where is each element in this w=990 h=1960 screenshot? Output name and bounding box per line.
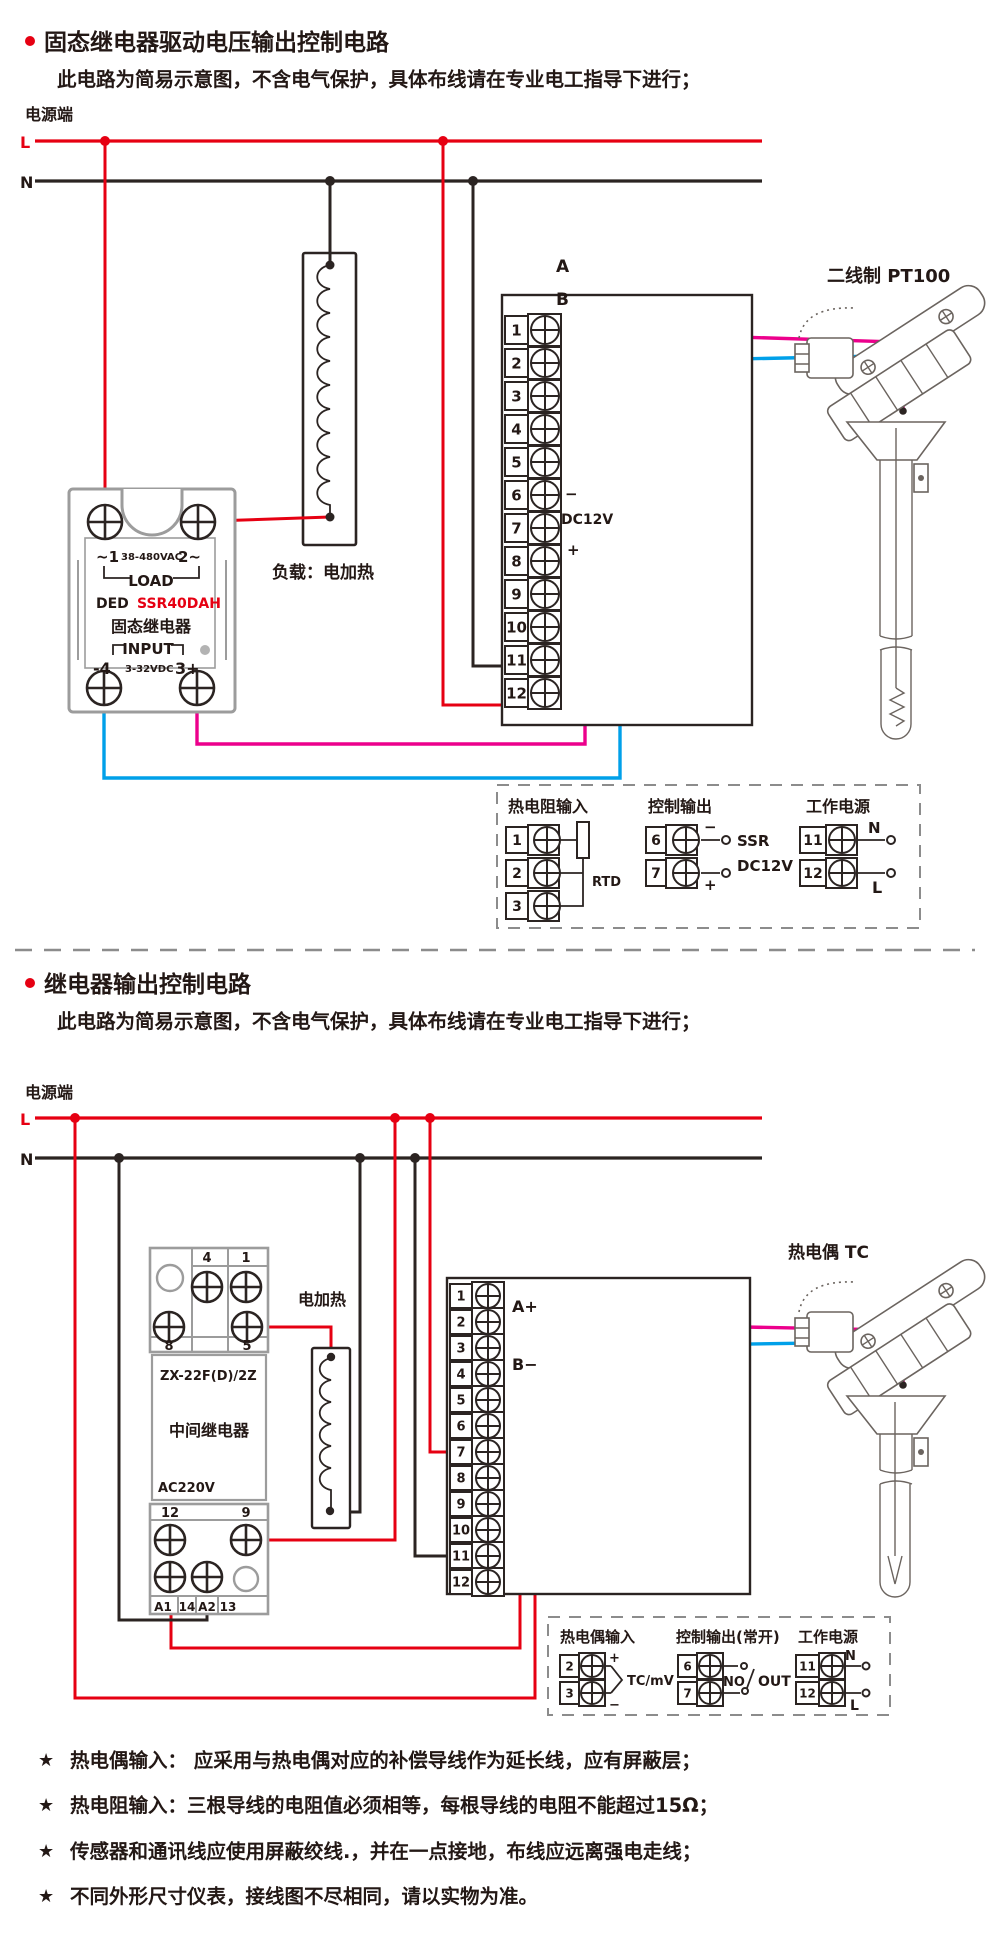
out-label: OUT <box>758 1674 791 1690</box>
power-l: L <box>872 878 882 897</box>
pt100-title: 二线制 PT100 <box>827 265 950 287</box>
star-icon: ★ <box>38 1795 54 1816</box>
footnote-4: 不同外形尺寸仪表，接线图不尽相同，请以实物为准。 <box>70 1885 538 1908</box>
svg-text:AC220V: AC220V <box>158 1481 215 1496</box>
ctrl-pin-6 <box>722 836 730 844</box>
junction-dot <box>390 1113 400 1123</box>
label-b-minus: B− <box>512 1355 538 1374</box>
no-label: NO <box>723 1675 745 1690</box>
dc12v-label: DC12V <box>561 512 613 528</box>
junction-dot <box>100 136 110 146</box>
svg-text:中间继电器: 中间继电器 <box>169 1421 250 1440</box>
relay-component: 4185ZX-22F(D)/2Z中间继电器AC220V129A114A213 <box>150 1248 268 1614</box>
heater1-bottom-dot <box>326 513 335 522</box>
legend-power-title: 工作电源 <box>798 1628 858 1646</box>
svg-text:3: 3 <box>565 1686 573 1700</box>
legend-ctrl-title: 控制输出 <box>648 797 712 816</box>
svg-text:ZX-22F(D)/2Z: ZX-22F(D)/2Z <box>160 1369 257 1384</box>
dc-plus: + <box>567 541 580 559</box>
svg-text:12: 12 <box>506 684 527 702</box>
svg-text:9: 9 <box>241 1506 250 1521</box>
tc-head <box>795 1254 990 1597</box>
ssr-name: 固态继电器 <box>111 617 192 636</box>
svg-text:11: 11 <box>803 833 822 849</box>
section1: 固态继电器驱动电压输出控制电路 此电路为简易示意图，不含电气保护，具体布线请在专… <box>20 29 990 928</box>
power-pin-n <box>887 836 895 844</box>
ssr-terminal-3: 3+ <box>175 659 200 678</box>
svg-text:11: 11 <box>452 1550 470 1565</box>
ctrl-plus: + <box>704 876 717 894</box>
svg-text:7: 7 <box>456 1446 465 1461</box>
svg-text:2: 2 <box>511 354 521 372</box>
legend2-ctrl-terminals: 67 <box>678 1653 723 1706</box>
legend1-rtd-terminals: 123 <box>506 825 560 921</box>
ssr-component: ~1 38-480VAC 2~ LOAD DED SSR40DAH 固态继电器 … <box>69 489 235 712</box>
legend-2: 热电偶输入 控制输出(常开) 工作电源 23 + − TC/mV 67 NO O… <box>548 1617 890 1715</box>
svg-text:12: 12 <box>452 1576 470 1591</box>
line-n-label: N <box>20 173 33 192</box>
star-icon: ★ <box>38 1750 54 1771</box>
power-terminal-label: 电源端 <box>25 105 73 124</box>
svg-text:2: 2 <box>565 1659 573 1673</box>
svg-text:12: 12 <box>799 1686 816 1700</box>
legend-power-title: 工作电源 <box>806 797 870 816</box>
ctrl-dc12v-label: DC12V <box>737 857 793 875</box>
power-n: N <box>868 819 881 837</box>
label-a-plus: A+ <box>512 1297 538 1316</box>
ssr-terminal-4: -4 <box>93 659 111 678</box>
instrument2-terminals: 123456789101112 <box>450 1282 504 1596</box>
junction-dot <box>355 1153 365 1163</box>
legend-ctrl-title: 控制输出(常开) <box>676 1628 780 1646</box>
line-l-label: L <box>20 133 30 152</box>
legend2-tc-terminals: 23 <box>560 1653 605 1706</box>
svg-text:2: 2 <box>456 1316 465 1331</box>
ctrl-minus: − <box>704 818 717 836</box>
svg-text:1: 1 <box>241 1251 250 1266</box>
svg-text:3: 3 <box>456 1342 465 1357</box>
bullet-icon <box>25 36 35 46</box>
bullet-icon <box>25 978 35 988</box>
svg-text:5: 5 <box>511 453 521 471</box>
no-pin <box>741 1663 747 1669</box>
instrument-2: 123456789101112 A+ B− <box>447 1278 750 1596</box>
svg-text:10: 10 <box>452 1524 470 1539</box>
dc-minus: − <box>565 485 578 503</box>
svg-text:1: 1 <box>512 833 522 849</box>
label-a: A <box>556 257 570 277</box>
svg-text:9: 9 <box>456 1498 465 1513</box>
section2-title: 继电器输出控制电路 <box>44 971 252 998</box>
svg-text:1: 1 <box>511 321 521 339</box>
svg-text:13: 13 <box>220 1600 237 1614</box>
svg-text:4: 4 <box>511 420 521 438</box>
svg-text:10: 10 <box>506 618 527 636</box>
power-pin-l <box>863 1690 870 1697</box>
tc-title: 热电偶 TC <box>788 1242 869 1263</box>
instrument-1: 123456789101112 A B − DC12V + <box>502 257 752 725</box>
tc-plus: + <box>609 1651 620 1666</box>
load-label: 负载：电加热 <box>272 562 374 583</box>
svg-text:8: 8 <box>164 1339 173 1354</box>
svg-text:9: 9 <box>511 585 521 603</box>
ctrl-ssr-label: SSR <box>737 832 770 850</box>
svg-text:8: 8 <box>511 552 521 570</box>
ssr-input-label: INPUT <box>122 640 174 658</box>
heater-1: 负载：电加热 <box>272 253 374 583</box>
footnote-3: 传感器和通讯线应使用屏蔽绞线.，并在一点接地，布线应远离强电走线； <box>69 1840 701 1863</box>
ssr-led <box>200 645 210 655</box>
svg-text:11: 11 <box>506 651 527 669</box>
svg-text:5: 5 <box>242 1339 251 1354</box>
ssr-model: SSR40DAH <box>137 596 221 612</box>
power-pin-n <box>863 1663 870 1670</box>
wiring-diagram-page: 固态继电器驱动电压输出控制电路 此电路为简易示意图，不含电气保护，具体布线请在专… <box>0 0 990 1960</box>
section2: 继电器输出控制电路 此电路为简易示意图，不含电气保护，具体布线请在专业电工指导下… <box>20 971 990 1715</box>
ctrl-pin-7 <box>722 869 730 877</box>
svg-text:14: 14 <box>179 1600 196 1614</box>
svg-text:6: 6 <box>683 1659 691 1673</box>
svg-text:12: 12 <box>161 1506 179 1521</box>
legend-rtd-title: 热电阻输入 <box>508 797 588 816</box>
junction-dot <box>410 1153 420 1163</box>
junction-dot <box>70 1113 80 1123</box>
heater1-top-dot <box>326 261 335 270</box>
junction-dot <box>425 1113 435 1123</box>
svg-text:7: 7 <box>651 866 661 882</box>
ssr-vdc-rating: 3-32VDC <box>125 664 173 675</box>
section1-subtitle: 此电路为简易示意图，不含电气保护，具体布线请在专业电工指导下进行； <box>57 68 701 91</box>
junction-dot <box>114 1153 124 1163</box>
svg-text:7: 7 <box>511 519 521 537</box>
svg-text:A2: A2 <box>198 1600 216 1614</box>
svg-text:3: 3 <box>511 387 521 405</box>
svg-text:7: 7 <box>683 1686 691 1700</box>
rtd-label: RTD <box>592 875 621 890</box>
svg-text:1: 1 <box>456 1290 465 1305</box>
svg-text:8: 8 <box>456 1472 465 1487</box>
svg-text:2: 2 <box>512 866 522 882</box>
label-b: B <box>556 290 569 310</box>
power-l: L <box>850 1698 859 1714</box>
power-n: N <box>845 1649 856 1664</box>
line-n-label: N <box>20 1150 33 1169</box>
svg-text:3: 3 <box>512 899 522 915</box>
section1-title: 固态继电器驱动电压输出控制电路 <box>44 29 390 56</box>
switch-blade <box>747 1669 754 1688</box>
legend1-power-terminals: 1112 <box>800 825 857 888</box>
ssr-brand: DED <box>96 596 129 612</box>
svg-text:A1: A1 <box>154 1600 172 1614</box>
junction-dot <box>468 176 478 186</box>
footnotes: ★ 热电偶输入： 应采用与热电偶对应的补偿导线作为延长线，应有屏蔽层； ★ 热电… <box>38 1749 718 1908</box>
svg-text:6: 6 <box>456 1420 465 1435</box>
footnote-2: 热电阻输入：三根导线的电阻值必须相等，每根导线的电阻不能超过15Ω； <box>70 1794 718 1817</box>
legend-1: 热电阻输入 控制输出 工作电源 123 RTD 67 − SSR DC12V +… <box>497 785 920 928</box>
section2-subtitle: 此电路为简易示意图，不含电气保护，具体布线请在专业电工指导下进行； <box>57 1010 701 1033</box>
heater-label: 电加热 <box>298 1290 346 1309</box>
junction-dot <box>325 176 335 186</box>
svg-text:4: 4 <box>456 1368 465 1383</box>
legend-tc-title: 热电偶输入 <box>560 1628 635 1646</box>
svg-text:12: 12 <box>803 866 822 882</box>
footnote-1: 热电偶输入： 应采用与热电偶对应的补偿导线作为延长线，应有屏蔽层； <box>70 1749 701 1772</box>
svg-text:4: 4 <box>202 1251 211 1266</box>
svg-text:11: 11 <box>799 1659 816 1673</box>
ssr-terminal-2: 2~ <box>178 548 201 566</box>
tc-mv-label: TC/mV <box>627 1674 674 1689</box>
ssr-vac-rating: 38-480VAC <box>121 552 182 563</box>
junction-dot <box>438 136 448 146</box>
pt100-head <box>795 280 990 739</box>
power-pin-l <box>887 869 895 877</box>
tc-minus: − <box>609 1698 620 1713</box>
legend2-power-terminals: 1112 <box>796 1653 845 1706</box>
ssr-load-label: LOAD <box>128 572 173 590</box>
ssr-terminal-1: ~1 <box>96 548 119 566</box>
line-l-label: L <box>20 1110 30 1129</box>
legend1-ctrl-terminals: 67 <box>646 825 699 888</box>
star-icon: ★ <box>38 1841 54 1862</box>
star-icon: ★ <box>38 1886 54 1907</box>
power-terminal-label: 电源端 <box>25 1083 73 1102</box>
tc-bracket <box>604 1666 622 1693</box>
rtd-resistor <box>577 822 589 858</box>
svg-text:5: 5 <box>456 1394 465 1409</box>
svg-text:6: 6 <box>511 486 521 504</box>
svg-text:6: 6 <box>651 833 661 849</box>
diagram-svg: 固态继电器驱动电压输出控制电路 此电路为简易示意图，不含电气保护，具体布线请在专… <box>0 0 990 1960</box>
